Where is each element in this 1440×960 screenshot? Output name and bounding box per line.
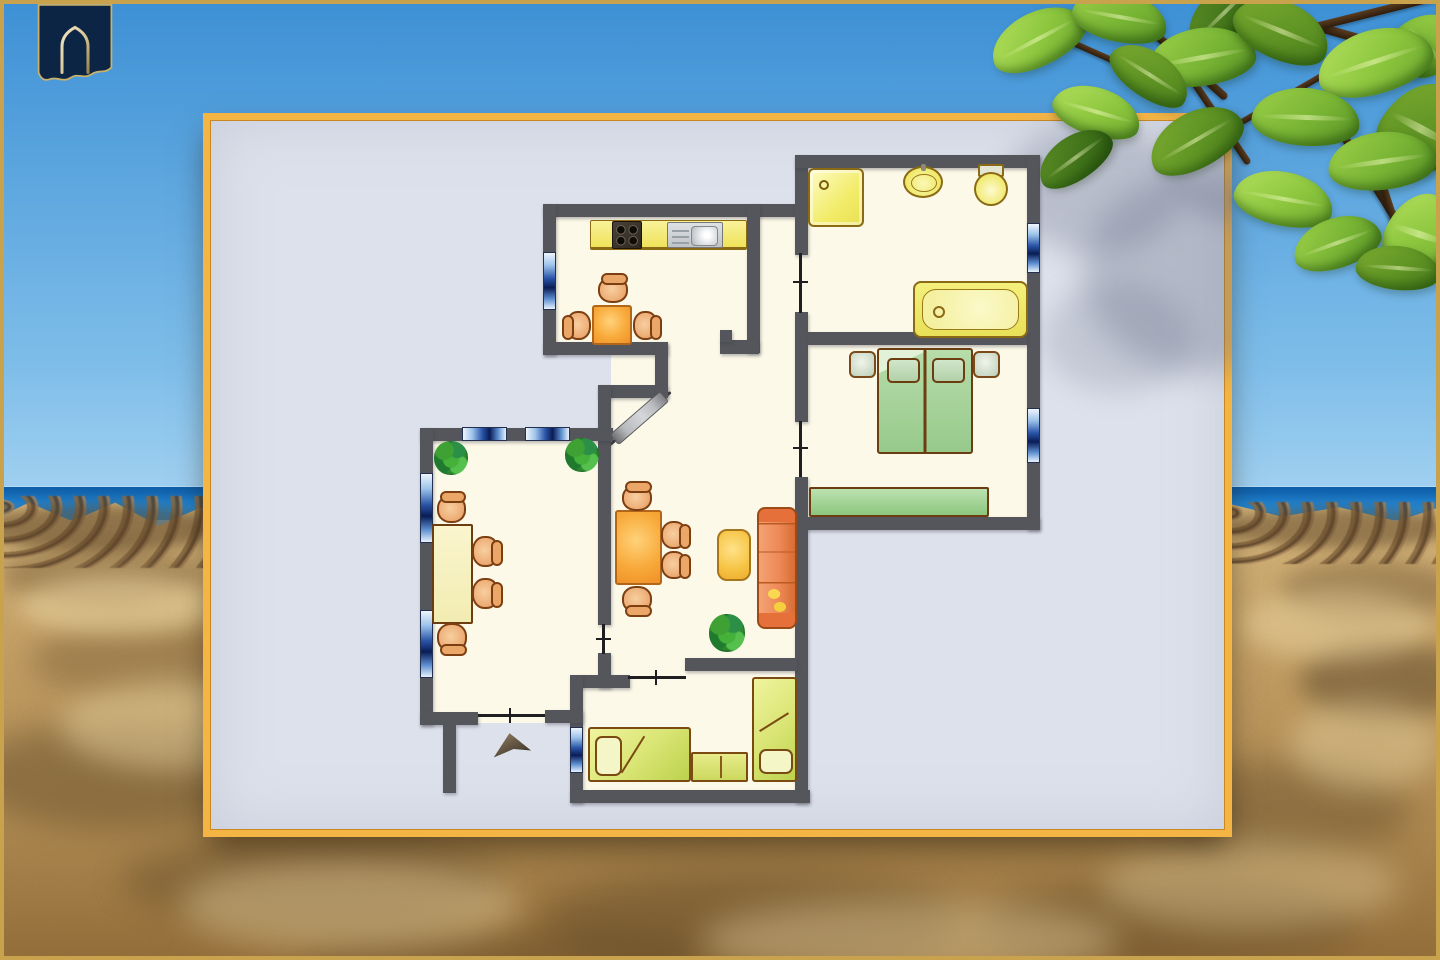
rocky-ridge-left — [0, 496, 216, 568]
rocky-ridge-right — [1222, 502, 1440, 564]
floorplan-card — [203, 113, 1232, 837]
brand-logo-banner — [36, 0, 114, 100]
logo-banner-shape — [39, 5, 112, 80]
beach-floorplan-scene — [0, 0, 1440, 960]
